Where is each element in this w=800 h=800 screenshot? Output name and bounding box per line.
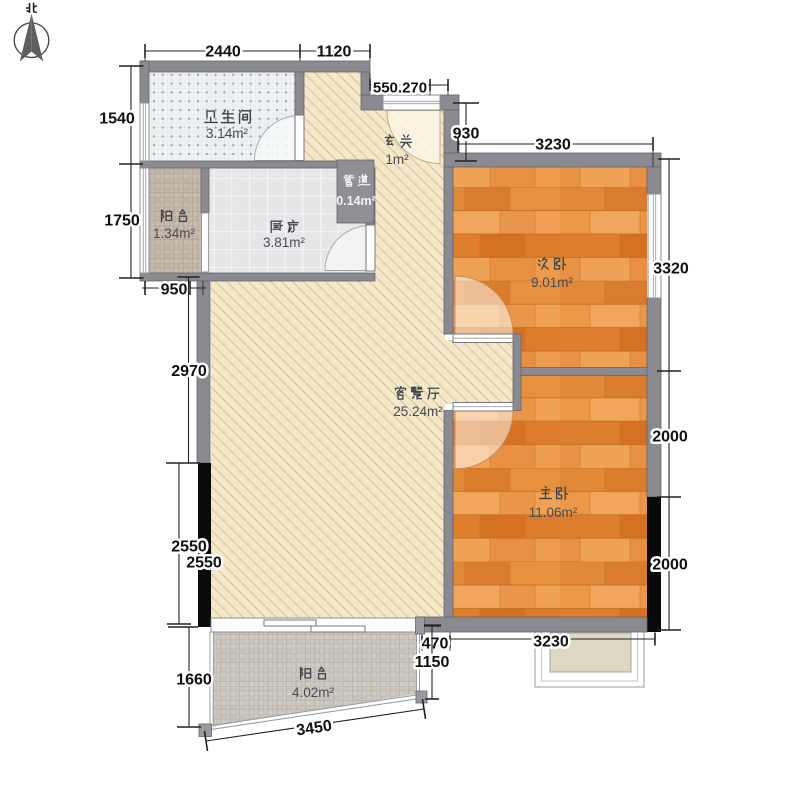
svg-text:2550: 2550 <box>171 539 207 556</box>
svg-text:1.34m²: 1.34m² <box>153 226 196 241</box>
svg-text:1120: 1120 <box>317 44 352 61</box>
svg-text:25.24m²: 25.24m² <box>393 404 443 419</box>
svg-text:2550: 2550 <box>186 555 222 572</box>
svg-text:1750: 1750 <box>104 213 140 230</box>
svg-text:2970: 2970 <box>171 363 207 380</box>
svg-text:11.06m²: 11.06m² <box>529 505 578 520</box>
svg-text:1540: 1540 <box>99 111 135 128</box>
svg-text:930: 930 <box>453 126 480 143</box>
svg-text:1150: 1150 <box>415 654 450 671</box>
svg-text:470: 470 <box>422 636 449 653</box>
svg-text:4.02m²: 4.02m² <box>292 685 335 700</box>
svg-text:0.14m²: 0.14m² <box>336 194 376 208</box>
svg-text:9.01m²: 9.01m² <box>531 275 574 290</box>
svg-text:3320: 3320 <box>653 261 689 278</box>
svg-text:1m²: 1m² <box>385 152 409 167</box>
svg-text:1660: 1660 <box>176 672 212 689</box>
svg-text:550.270: 550.270 <box>373 80 427 97</box>
svg-text:3.81m²: 3.81m² <box>263 235 306 250</box>
svg-text:950: 950 <box>161 282 188 299</box>
svg-text:2000: 2000 <box>652 429 688 446</box>
svg-text:2440: 2440 <box>205 44 241 61</box>
svg-text:3.14m²: 3.14m² <box>206 126 249 141</box>
svg-text:3230: 3230 <box>535 137 571 154</box>
svg-text:2000: 2000 <box>652 557 688 574</box>
svg-text:3230: 3230 <box>533 634 569 651</box>
